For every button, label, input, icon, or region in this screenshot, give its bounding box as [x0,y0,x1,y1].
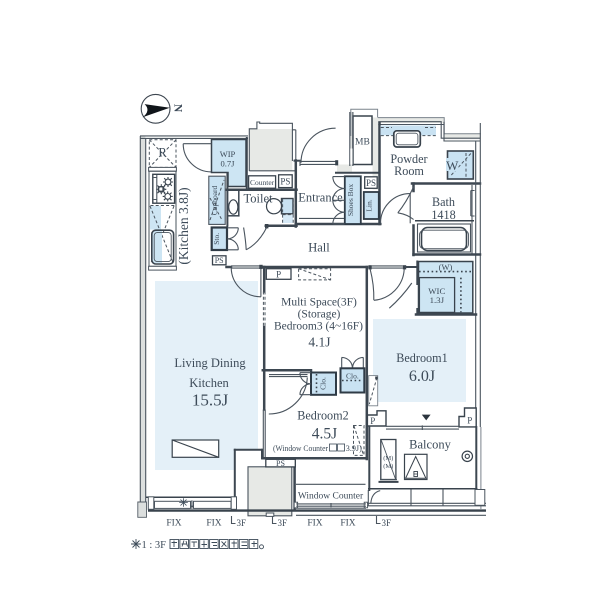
svg-text:(M): (M) [383,455,393,462]
svg-text:(Window Counter: (Window Counter [273,444,328,453]
svg-text:1: 1 [190,498,194,508]
svg-text:MB: MB [355,138,370,148]
svg-text:Entrance: Entrance [298,191,343,205]
svg-text:Bedroom2: Bedroom2 [297,409,348,423]
svg-text:FIX: FIX [166,519,181,529]
svg-text:6.0J: 6.0J [409,368,435,385]
svg-text:Hall: Hall [308,241,330,255]
svg-text:0.7J: 0.7J [221,159,236,169]
svg-text:Clo.: Clo. [319,377,328,390]
svg-text:FIX: FIX [340,519,355,529]
svg-text:1418: 1418 [431,208,455,222]
svg-text:Clo.: Clo. [346,372,359,381]
svg-text:Sto.: Sto. [212,233,221,245]
svg-text:WIP: WIP [220,149,236,159]
svg-text:3.9J): 3.9J) [346,444,362,453]
svg-text:P: P [467,416,472,426]
svg-text:15.5J: 15.5J [192,391,229,410]
svg-text:PS: PS [280,177,290,187]
svg-text:(W): (W) [439,262,453,272]
svg-text:Bedroom3 (4~16F): Bedroom3 (4~16F) [274,321,363,333]
svg-text:1.3J: 1.3J [430,295,445,305]
svg-text:(Storage): (Storage) [298,309,341,321]
svg-text:(M): (M) [383,463,393,470]
svg-text:4.5J: 4.5J [312,426,337,443]
svg-text:Counter: Counter [250,178,275,187]
svg-text:Bedroom1: Bedroom1 [396,351,447,365]
svg-text:(Kitchen 3.8J): (Kitchen 3.8J) [176,187,191,264]
svg-text:3F: 3F [382,518,392,528]
svg-text:Window Counter: Window Counter [298,492,364,502]
svg-text:Lin.: Lin. [364,199,373,211]
svg-text:PS: PS [276,459,285,468]
svg-text:Cupboard: Cupboard [210,185,219,215]
svg-text:PS: PS [366,178,376,188]
svg-text:P: P [276,269,281,279]
svg-text:3F: 3F [278,518,288,528]
svg-text:Living Dining: Living Dining [174,356,246,370]
svg-text:Toilet: Toilet [244,192,274,206]
svg-text:Multi Space(3F): Multi Space(3F) [281,297,357,309]
svg-text:N: N [172,104,184,113]
svg-text:W: W [446,158,459,173]
svg-text:FIX: FIX [307,519,322,529]
svg-text:PS: PS [215,256,224,265]
svg-text:R: R [158,146,167,160]
svg-text:3F: 3F [237,518,247,528]
svg-text:4.1J: 4.1J [308,335,330,350]
svg-text:Kitchen: Kitchen [189,376,229,390]
svg-text:1 : 3F: 1 : 3F [142,540,167,551]
svg-text:Shoes Box: Shoes Box [346,184,355,217]
svg-text:FIX: FIX [206,519,221,529]
svg-text:Bath: Bath [432,195,455,209]
svg-text:Room: Room [394,164,424,178]
svg-text:Balcony: Balcony [409,438,451,452]
svg-text:P: P [370,416,375,426]
